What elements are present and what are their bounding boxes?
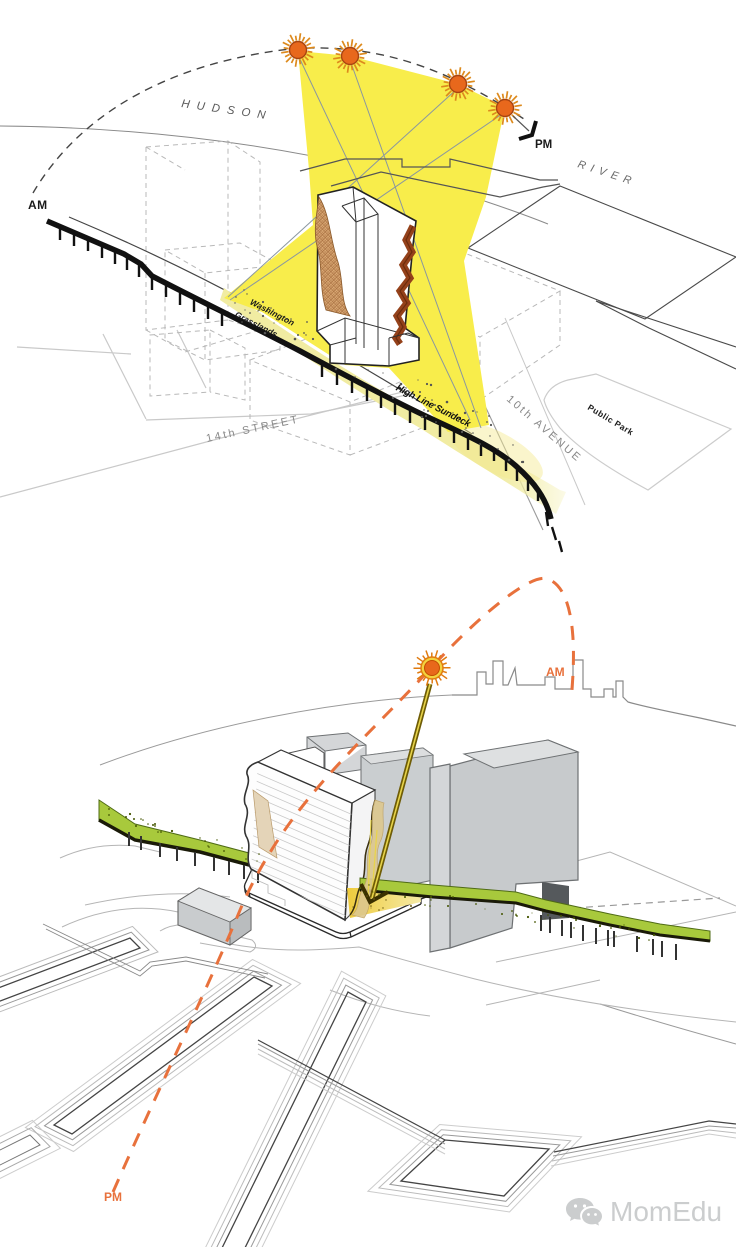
svg-text:AM: AM [28, 198, 48, 212]
svg-text:PM: PM [535, 139, 552, 151]
svg-text:MomEdu: MomEdu [610, 1196, 722, 1227]
svg-text:PM: PM [104, 1190, 122, 1204]
svg-text:AM: AM [546, 665, 565, 679]
